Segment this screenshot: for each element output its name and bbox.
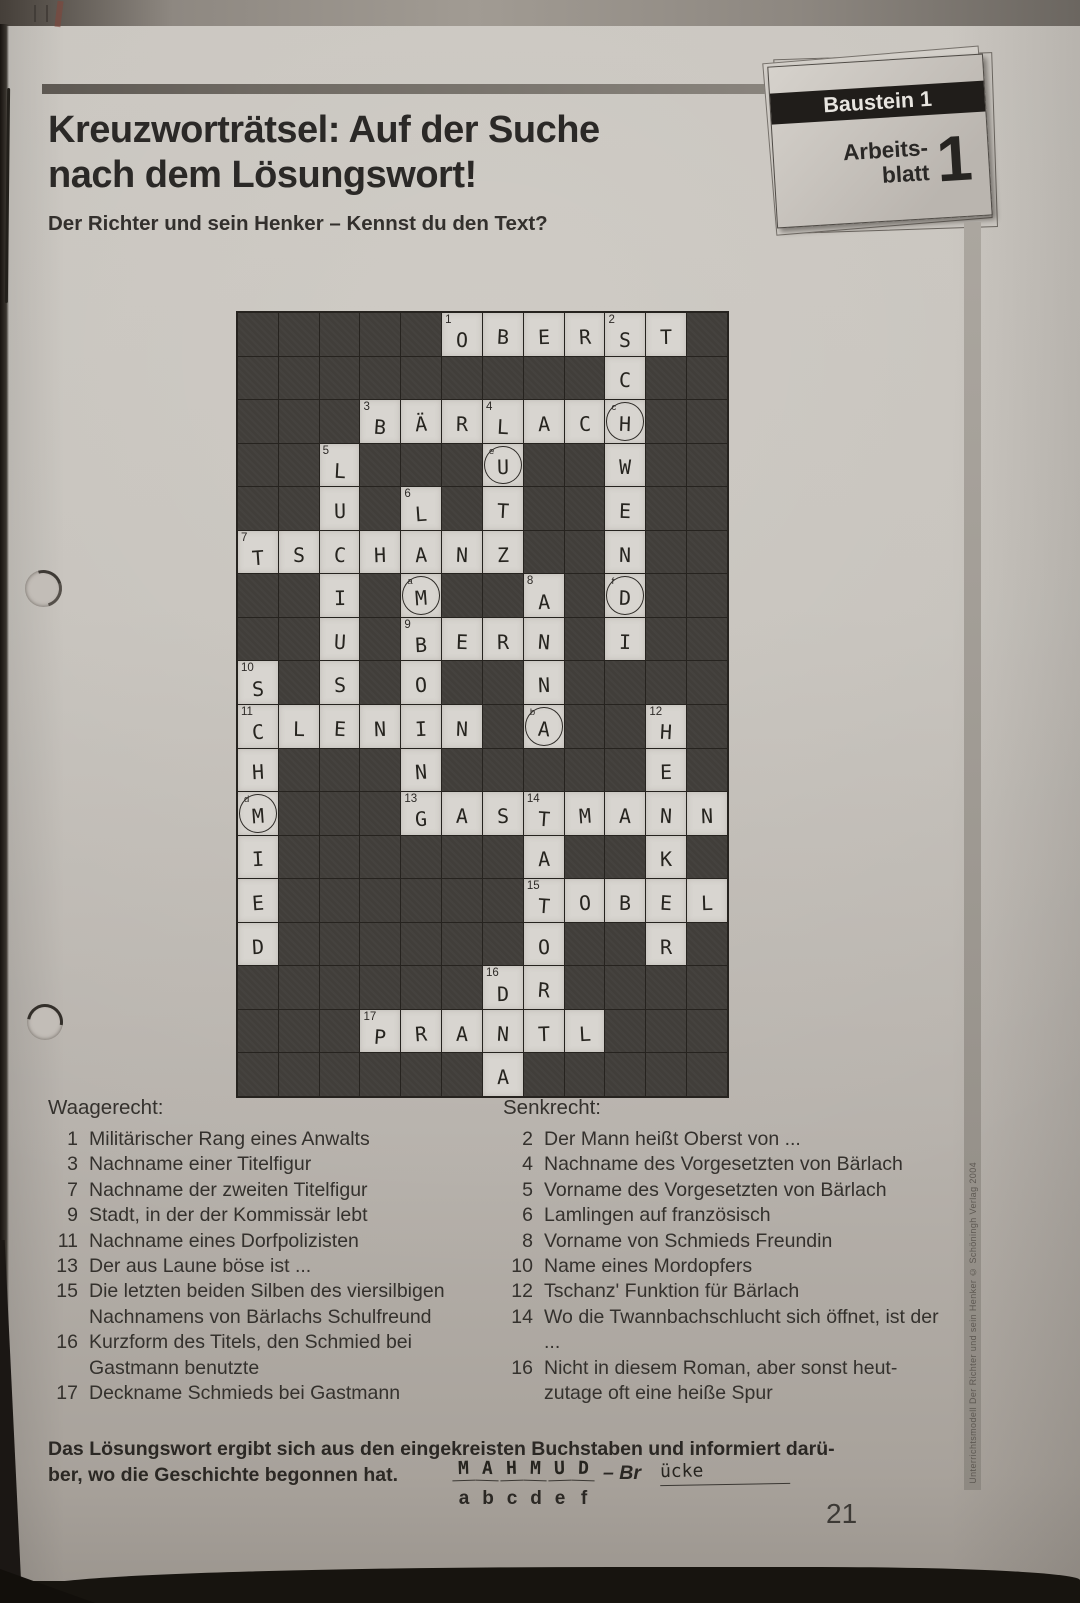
crossword-cell-blocked	[687, 661, 727, 704]
crossword-cell-letter: N	[524, 661, 564, 704]
page-number: 21	[826, 1498, 857, 1530]
crossword-cell-blocked	[605, 705, 645, 748]
crossword-cell-letter: 3B	[360, 400, 400, 443]
handwritten-solution-letter: U	[548, 1456, 572, 1482]
crossword-cell-blocked	[360, 836, 400, 879]
handwritten-letter: R	[456, 412, 468, 436]
crossword-cell-letter: B	[605, 879, 645, 922]
worksheet-badge: Baustein 1 Arbeits- blatt 1	[767, 54, 992, 229]
handwritten-letter: A	[537, 589, 550, 613]
crossword-cell-blocked	[646, 618, 686, 661]
crossword-cell-blocked	[565, 357, 605, 400]
crossword-cell-blocked	[360, 923, 400, 966]
crossword-cell-letter: eU	[483, 444, 523, 487]
handwritten-letter: N	[374, 717, 387, 741]
clue-number: 14	[527, 793, 540, 805]
crossword-cell-blocked	[238, 1010, 278, 1053]
crossword-cell-blocked	[279, 879, 319, 922]
crossword-cell-blocked	[483, 357, 523, 400]
crossword-cell-blocked	[687, 923, 727, 966]
crossword-cell-blocked	[279, 574, 319, 617]
crossword-cell-letter: S	[279, 531, 319, 574]
crossword-cell-letter: R	[442, 400, 482, 443]
crossword-cell-blocked	[442, 487, 482, 530]
crossword-cell-blocked	[646, 1053, 686, 1096]
crossword-cell-letter: N	[442, 531, 482, 574]
crossword-cell-blocked	[320, 749, 360, 792]
clue-item-text: Nachname eines Dorfpolizisten	[89, 1229, 497, 1254]
clue-item: 17Deckname Schmieds bei Gastmann	[48, 1381, 500, 1406]
handwritten-letter: A	[537, 716, 551, 741]
crossword-cell-blocked	[565, 444, 605, 487]
clue-item-text: Kurzform des Titels, den Schmied bei Gas…	[89, 1330, 497, 1381]
crossword-cell-blocked	[687, 1053, 727, 1096]
crossword-cell-letter: 6L	[401, 487, 441, 530]
solution-letter-index: e	[489, 446, 494, 457]
crossword-cell-blocked	[238, 574, 278, 617]
handwritten-letter: E	[619, 499, 632, 523]
handwritten-letter: O	[414, 673, 428, 698]
crossword-cell-letter: N	[483, 1010, 523, 1053]
crossword-cell-letter: I	[605, 618, 645, 661]
handwritten-solution-letter: M	[452, 1456, 476, 1482]
handwritten-letter: B	[374, 415, 388, 440]
handwritten-solution-suffix: ücke	[660, 1457, 790, 1486]
crossword-cell-blocked	[646, 357, 686, 400]
clue-number: 17	[363, 1011, 376, 1023]
crossword-cell-blocked	[279, 444, 319, 487]
crossword-cell-blocked	[238, 487, 278, 530]
crossword-cell-letter: fD	[605, 574, 645, 617]
clue-number: 7	[241, 532, 247, 544]
crossword-cell-blocked	[483, 879, 523, 922]
clue-number: 13	[404, 793, 417, 805]
crossword-cell-letter: 7T	[238, 531, 278, 574]
crossword-cell-letter: L	[279, 705, 319, 748]
crossword-cell-blocked	[401, 1053, 441, 1096]
crossword-cell-letter: 2S	[605, 313, 645, 356]
handwritten-letter: N	[660, 804, 673, 829]
crossword-cell-blocked	[238, 357, 278, 400]
crossword-cell-blocked	[605, 661, 645, 704]
punch-hole-bottom	[27, 1004, 63, 1040]
crossword-cell-letter: 14T	[524, 792, 564, 835]
crossword-cell-blocked	[279, 1010, 319, 1053]
handwritten-letter: C	[619, 368, 631, 392]
clue-item-number: 15	[48, 1279, 89, 1330]
crossword-cell-blocked	[605, 1053, 645, 1096]
clue-item-text: Lamlingen auf französisch	[544, 1203, 946, 1228]
clue-item: 4Nachname des Vorgesetzten von Bärlach	[503, 1152, 951, 1177]
handwritten-letter: L	[293, 717, 305, 741]
crossword-cell-letter: 10S	[238, 661, 278, 704]
handwritten-letter: E	[660, 760, 672, 784]
crossword-cell-blocked	[360, 313, 400, 356]
clues-down-section: Senkrecht: 2Der Mann heißt Oberst von ..…	[503, 1096, 951, 1406]
clue-number: 4	[486, 401, 492, 413]
crossword-cell-blocked	[401, 444, 441, 487]
handwritten-letter: O	[537, 934, 550, 958]
handwritten-letter: P	[374, 1025, 388, 1050]
handwritten-letter: R	[414, 1021, 428, 1046]
handwritten-letter: N	[537, 629, 551, 654]
solution-letter-index: c	[611, 402, 616, 413]
clue-item-text: Militärischer Rang eines Anwalts	[89, 1127, 497, 1152]
crossword-cell-blocked	[401, 966, 441, 1009]
clue-item: 15Die letzten beiden Silben des viersilb…	[48, 1279, 500, 1330]
solution-dash-prefix: – Br	[603, 1460, 641, 1486]
clue-item-number: 4	[503, 1152, 544, 1177]
crossword-cell-letter: 11C	[238, 705, 278, 748]
handwritten-letter: A	[537, 847, 550, 871]
handwritten-letter: T	[537, 807, 551, 832]
crossword-cell-letter: A	[483, 1053, 523, 1096]
handwritten-letter: I	[619, 630, 631, 654]
photo-top-edge	[0, 0, 1080, 26]
crossword-cell-blocked	[646, 487, 686, 530]
handwritten-letter: C	[251, 720, 265, 745]
solution-section: Das Lösungswort ergibt sich aus den eing…	[48, 1436, 953, 1492]
crossword-cell-letter: N	[401, 749, 441, 792]
handwritten-letter: L	[578, 1021, 591, 1046]
handwritten-letter: N	[496, 1021, 509, 1046]
crossword-cell-letter: A	[442, 792, 482, 835]
crossword-cell-blocked	[320, 923, 360, 966]
handwritten-letter: K	[660, 847, 672, 871]
clue-item-text: Stadt, in der der Kommissär lebt	[89, 1203, 497, 1228]
clue-item-number: 14	[503, 1305, 544, 1356]
crossword-cell-letter: N	[524, 618, 564, 661]
handwritten-solution-letter: A	[476, 1456, 500, 1482]
crossword-cell-blocked	[524, 487, 564, 530]
crossword-cell-blocked	[687, 444, 727, 487]
handwritten-letter: W	[619, 455, 631, 479]
crossword-cell-letter: I	[238, 836, 278, 879]
clue-item: 10Name eines Mordopfers	[503, 1254, 951, 1279]
handwritten-letter: Ä	[414, 412, 428, 437]
crossword-cell-letter: dM	[238, 792, 278, 835]
page-title-line2: nach dem Lösungswort!	[48, 153, 600, 198]
crossword-cell-blocked	[320, 836, 360, 879]
crossword-cell-blocked	[442, 661, 482, 704]
handwritten-letter: H	[619, 412, 632, 436]
crossword-cell-letter: U	[320, 487, 360, 530]
crossword-cell-blocked	[646, 444, 686, 487]
clue-item-number: 7	[48, 1178, 89, 1203]
crossword-cell-letter: H	[238, 749, 278, 792]
crossword-cell-blocked	[524, 1053, 564, 1096]
crossword-cell-blocked	[401, 923, 441, 966]
crossword-cell-letter: E	[524, 313, 564, 356]
crossword-cell-blocked	[605, 923, 645, 966]
crossword-cell-blocked	[442, 749, 482, 792]
crossword-cell-letter: L	[565, 1010, 605, 1053]
handwritten-letter: T	[537, 1022, 550, 1046]
crossword-cell-blocked	[320, 400, 360, 443]
clue-item-number: 11	[48, 1229, 89, 1254]
clue-item: 7Nachname der zweiten Titelfigur	[48, 1178, 500, 1203]
crossword-cell-letter: A	[524, 836, 564, 879]
crossword-cell-blocked	[238, 966, 278, 1009]
crossword-cell-letter: N	[687, 792, 727, 835]
crossword-cell-blocked	[238, 618, 278, 661]
crossword-cell-letter: N	[646, 792, 686, 835]
handwritten-letter: O	[578, 891, 592, 916]
handwritten-solution-letter: D	[572, 1456, 596, 1482]
handwritten-letter: S	[293, 542, 305, 566]
crossword-cell-blocked	[565, 574, 605, 617]
crossword-cell-blocked	[442, 879, 482, 922]
crossword-cell-blocked	[360, 444, 400, 487]
solution-label-letter: d	[524, 1486, 548, 1512]
handwritten-letter: A	[456, 804, 469, 828]
crossword-cell-letter: R	[401, 1010, 441, 1053]
clue-item: 14Wo die Twannbachschlucht sich öffnet, …	[503, 1305, 951, 1356]
crossword-cell-letter: H	[360, 531, 400, 574]
clue-item-text: Tschanz' Funktion für Bärlach	[544, 1279, 946, 1304]
handwritten-letter: E	[537, 325, 550, 349]
crossword-cell-blocked	[360, 1053, 400, 1096]
handwritten-letter: R	[537, 978, 551, 1003]
crossword-cell-letter: 15T	[524, 879, 564, 922]
worksheet-photo: Kreuzworträtsel: Auf der Suche nach dem …	[0, 0, 1080, 1603]
crossword-cell-letter: E	[320, 705, 360, 748]
crossword-cell-blocked	[320, 792, 360, 835]
crossword-cell-blocked	[442, 836, 482, 879]
crossword-cell-blocked	[238, 444, 278, 487]
crossword-cell-letter: M	[565, 792, 605, 835]
crossword-cell-blocked	[442, 966, 482, 1009]
handwritten-letter: U	[497, 455, 509, 479]
clue-item-number: 3	[48, 1152, 89, 1177]
crossword-cell-letter: D	[238, 923, 278, 966]
crossword-cell-letter: C	[320, 531, 360, 574]
crossword-cell-letter: R	[565, 313, 605, 356]
clues-across-list: 1Militärischer Rang eines Anwalts3Nachna…	[48, 1127, 500, 1406]
crossword-cell-blocked	[279, 357, 319, 400]
clue-item-text: Wo die Twannbachschlucht sich öffnet, is…	[544, 1305, 946, 1356]
crossword-cell-letter: B	[483, 313, 523, 356]
clue-item-number: 12	[503, 1279, 544, 1304]
clue-item-number: 16	[503, 1356, 544, 1407]
crossword-cell-blocked	[360, 618, 400, 661]
crossword-cell-blocked	[360, 966, 400, 1009]
crossword-cell-blocked	[565, 705, 605, 748]
handwritten-letter: T	[496, 499, 509, 524]
crossword-cell-blocked	[442, 444, 482, 487]
clue-item-text: Die letzten beiden Silben des viersilbig…	[89, 1279, 497, 1330]
crossword-cell-blocked	[320, 313, 360, 356]
crossword-cell-letter: A	[524, 400, 564, 443]
handwritten-solution-letter: M	[524, 1456, 548, 1482]
handwritten-letter: A	[456, 1022, 468, 1046]
crossword-cell-letter: E	[646, 749, 686, 792]
clue-item: 2Der Mann heißt Oberst von ...	[503, 1127, 951, 1152]
crossword-cell-blocked	[360, 879, 400, 922]
crossword-cell-blocked	[320, 1053, 360, 1096]
crossword-cell-blocked	[687, 966, 727, 1009]
crossword-cell-blocked	[483, 705, 523, 748]
handwritten-letter: R	[660, 934, 672, 958]
clues-down-list: 2Der Mann heißt Oberst von ...4Nachname …	[503, 1127, 951, 1406]
solution-line2: ber, wo die Geschichte begonnen hat. MAH…	[48, 1462, 953, 1492]
crossword-cell-letter: I	[401, 705, 441, 748]
badge-card: Baustein 1 Arbeits- blatt 1	[767, 54, 992, 229]
handwritten-solution-word: MAHMUD	[452, 1456, 596, 1481]
copyright-text: Unterrichtsmodell Der Richter und sein H…	[968, 1162, 978, 1490]
handwritten-letter: L	[701, 891, 714, 915]
crossword-cell-blocked	[279, 792, 319, 835]
handwritten-letter: N	[537, 673, 550, 697]
crossword-cell-blocked	[646, 531, 686, 574]
clue-item-text: Nachname des Vorgesetzten von Bärlach	[544, 1152, 946, 1177]
crossword-cell-letter: 8A	[524, 574, 564, 617]
clues-down-title: Senkrecht:	[503, 1096, 951, 1120]
clue-item-text: Deckname Schmieds bei Gastmann	[89, 1381, 497, 1406]
crossword-cell-letter: O	[401, 661, 441, 704]
handwritten-letter: R	[578, 325, 591, 350]
crossword-cell-blocked	[483, 923, 523, 966]
crossword-cell-letter: 12H	[646, 705, 686, 748]
handwritten-letter: T	[251, 546, 265, 571]
crossword-cell-blocked	[687, 705, 727, 748]
crossword-cell-letter: O	[565, 879, 605, 922]
crossword-cell-letter: 13G	[401, 792, 441, 835]
crossword-cell-letter: C	[605, 357, 645, 400]
crossword-cell-blocked	[524, 444, 564, 487]
handwritten-letter: S	[497, 804, 509, 828]
crossword-cell-blocked	[565, 749, 605, 792]
crossword-cell-blocked	[360, 792, 400, 835]
crossword-cell-letter: A	[442, 1010, 482, 1053]
crossword-cell-blocked	[401, 313, 441, 356]
crossword-cell-letter: S	[320, 661, 360, 704]
clue-item: 9Stadt, in der der Kommissär lebt	[48, 1203, 500, 1228]
handwritten-letter: I	[251, 847, 264, 872]
handwritten-letter: M	[578, 804, 592, 829]
crossword-cell-letter: 1O	[442, 313, 482, 356]
clue-item-number: 16	[48, 1330, 89, 1381]
crossword-cell-blocked	[401, 836, 441, 879]
crossword-cell-letter: I	[320, 574, 360, 617]
crossword-cell-letter: N	[360, 705, 400, 748]
clue-item: 16Nicht in diesem Roman, aber sonst heut…	[503, 1356, 951, 1407]
crossword-cell-letter: E	[238, 879, 278, 922]
clue-item: 1Militärischer Rang eines Anwalts	[48, 1127, 500, 1152]
solution-letter-index: d	[244, 794, 249, 805]
crossword-cell-letter: E	[605, 487, 645, 530]
crossword-cell-blocked	[238, 1053, 278, 1096]
crossword-cell-blocked	[279, 661, 319, 704]
handwritten-solution-letter: H	[500, 1456, 524, 1482]
handwritten-letter: N	[414, 760, 428, 785]
crossword-cell-blocked	[565, 923, 605, 966]
crossword-cell-blocked	[687, 1010, 727, 1053]
solution-label-letter: f	[572, 1486, 596, 1512]
crossword-cell-blocked	[565, 487, 605, 530]
crossword-cell-blocked	[279, 923, 319, 966]
crossword-cell-blocked	[605, 1010, 645, 1053]
clues-across-section: Waagerecht: 1Militärischer Rang eines An…	[48, 1096, 500, 1406]
handwritten-letter: R	[497, 630, 509, 654]
clue-item-number: 9	[48, 1203, 89, 1228]
crossword-cell-blocked	[401, 879, 441, 922]
crossword-cell-blocked	[524, 749, 564, 792]
clue-number: 10	[241, 662, 254, 674]
crossword-cell-letter: 9B	[401, 618, 441, 661]
clue-item: 12Tschanz' Funktion für Bärlach	[503, 1279, 951, 1304]
clue-item: 8Vorname von Schmieds Freundin	[503, 1229, 951, 1254]
handwritten-letter: E	[456, 630, 469, 654]
crossword-cell-blocked	[605, 836, 645, 879]
handwritten-letter: H	[660, 720, 673, 745]
crossword-cell-letter: N	[605, 531, 645, 574]
crossword-cell-blocked	[605, 749, 645, 792]
badge-body: Arbeits- blatt 1	[842, 125, 974, 197]
clue-number: 16	[486, 967, 499, 979]
crossword-cell-blocked	[483, 574, 523, 617]
crossword-cell-blocked	[565, 618, 605, 661]
handwritten-letter: S	[619, 328, 632, 352]
handwritten-letter: S	[251, 676, 264, 701]
handwritten-letter: N	[456, 542, 469, 566]
crossword-cell-blocked	[687, 531, 727, 574]
handwritten-letter: T	[660, 325, 672, 349]
clue-item: 11Nachname eines Dorfpolizisten	[48, 1229, 500, 1254]
handwritten-letter: L	[414, 502, 428, 527]
handwritten-letter: A	[497, 1065, 509, 1089]
crossword-cell-blocked	[483, 836, 523, 879]
handwritten-letter: I	[333, 586, 345, 610]
clue-item-number: 17	[48, 1381, 89, 1406]
crossword-cell-letter: 4L	[483, 400, 523, 443]
clues-across-title: Waagerecht:	[48, 1096, 500, 1120]
crossword-cell-letter: U	[320, 618, 360, 661]
handwritten-letter: S	[333, 673, 345, 697]
crossword-cell-letter: 17P	[360, 1010, 400, 1053]
crossword-cell-blocked	[646, 400, 686, 443]
crossword-cell-blocked	[483, 749, 523, 792]
solution-label-letter: e	[548, 1486, 572, 1512]
crossword-cell-blocked	[442, 574, 482, 617]
handwritten-letter: D	[497, 981, 509, 1005]
crossword-cell-letter: R	[483, 618, 523, 661]
crossword-cell-blocked	[360, 487, 400, 530]
badge-arbeitsblatt-label: Arbeits- blatt	[842, 135, 930, 190]
crossword-cell-blocked	[687, 836, 727, 879]
crossword-cell-letter: E	[442, 618, 482, 661]
clue-item-text: Nachname einer Titelfigur	[89, 1152, 497, 1177]
clue-number: 15	[527, 880, 540, 892]
clue-item-text: Name eines Mordopfers	[544, 1254, 946, 1279]
solution-line2-prefix: ber, wo die Geschichte begonnen hat.	[48, 1464, 398, 1486]
clue-item-text: Nachname der zweiten Titelfigur	[89, 1178, 497, 1203]
clue-item-number: 1	[48, 1127, 89, 1152]
clue-number: 6	[404, 488, 410, 500]
crossword-cell-blocked	[279, 749, 319, 792]
crossword-cell-blocked	[360, 574, 400, 617]
crossword-cell-blocked	[687, 574, 727, 617]
crossword-cell-blocked	[565, 531, 605, 574]
crossword-cell-blocked	[687, 357, 727, 400]
crossword-cell-blocked	[279, 836, 319, 879]
clue-item-text: Vorname des Vorgesetzten von Bärlach	[544, 1178, 946, 1203]
clue-number: 3	[363, 401, 369, 413]
crossword-cell-blocked	[238, 313, 278, 356]
solution-label-letter: b	[476, 1486, 500, 1512]
handwritten-letter: B	[415, 633, 428, 658]
crossword-cell-blocked	[483, 661, 523, 704]
